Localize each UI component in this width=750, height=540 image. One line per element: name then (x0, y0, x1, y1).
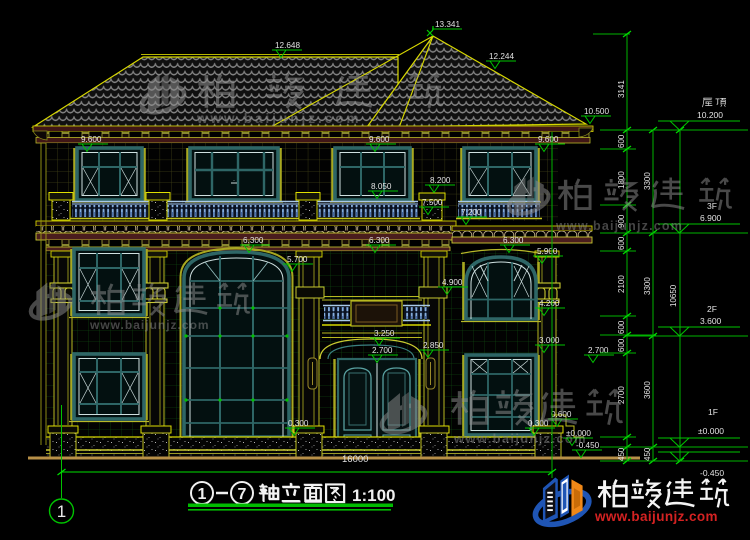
svg-text:5.900: 5.900 (537, 247, 558, 256)
svg-text:5.700: 5.700 (287, 255, 308, 264)
svg-text:www.baijunjz.com: www.baijunjz.com (594, 509, 718, 524)
svg-text:4.900: 4.900 (442, 278, 463, 287)
svg-text:6.300: 6.300 (369, 236, 390, 245)
svg-text:2F: 2F (707, 304, 717, 314)
svg-text:9.600: 9.600 (538, 135, 559, 144)
svg-text:6.300: 6.300 (243, 236, 264, 245)
svg-text:600: 600 (617, 134, 626, 148)
svg-text:6.300: 6.300 (503, 236, 524, 245)
svg-text:1:100: 1:100 (352, 486, 395, 505)
svg-text:7.200: 7.200 (461, 208, 482, 217)
svg-text:www.baijunjz.com: www.baijunjz.com (453, 431, 587, 446)
svg-text:3.600: 3.600 (700, 316, 722, 326)
svg-text:3.250: 3.250 (374, 329, 395, 338)
svg-text:www.baijunjz.com: www.baijunjz.com (89, 318, 210, 332)
svg-text:1F: 1F (708, 407, 718, 417)
svg-text:600: 600 (617, 236, 626, 250)
svg-text:13.341: 13.341 (435, 20, 460, 29)
svg-text:2.700: 2.700 (588, 346, 609, 355)
svg-text:8.200: 8.200 (430, 176, 451, 185)
svg-text:2100: 2100 (617, 275, 626, 293)
svg-text:www.baijunjz.com: www.baijunjz.com (196, 111, 362, 126)
svg-text:www.baijunjz.com: www.baijunjz.com (555, 219, 683, 233)
svg-text:10.200: 10.200 (697, 110, 723, 120)
svg-text:12.648: 12.648 (275, 41, 300, 50)
svg-text:1: 1 (57, 502, 66, 521)
svg-text:12.244: 12.244 (489, 52, 514, 61)
svg-text:9.600: 9.600 (81, 135, 102, 144)
svg-text:3F: 3F (707, 201, 717, 211)
svg-text:600: 600 (617, 320, 626, 334)
svg-text:4.200: 4.200 (539, 299, 560, 308)
svg-text:450: 450 (643, 447, 652, 461)
svg-text:±0.000: ±0.000 (698, 426, 724, 436)
svg-text:7: 7 (238, 486, 247, 503)
svg-text:3141: 3141 (617, 80, 626, 98)
svg-text:0.300: 0.300 (288, 419, 309, 428)
svg-text:3300: 3300 (643, 277, 652, 295)
svg-text:450: 450 (617, 447, 626, 461)
svg-text:9.600: 9.600 (369, 135, 390, 144)
svg-text:7.500: 7.500 (422, 198, 443, 207)
svg-text:16000: 16000 (342, 454, 368, 465)
svg-text:-0.450: -0.450 (700, 468, 724, 478)
svg-text:2.700: 2.700 (372, 346, 393, 355)
svg-text:10.500: 10.500 (584, 107, 609, 116)
svg-text:3600: 3600 (643, 381, 652, 399)
svg-text:3.000: 3.000 (539, 336, 560, 345)
svg-text:3300: 3300 (643, 172, 652, 190)
svg-text:600: 600 (617, 338, 626, 352)
svg-text:10650: 10650 (669, 284, 678, 307)
svg-text:2.850: 2.850 (423, 341, 444, 350)
svg-text:1: 1 (198, 486, 207, 503)
svg-text:8.050: 8.050 (371, 182, 392, 191)
svg-text:2700: 2700 (617, 386, 626, 404)
svg-text:6.900: 6.900 (700, 213, 722, 223)
